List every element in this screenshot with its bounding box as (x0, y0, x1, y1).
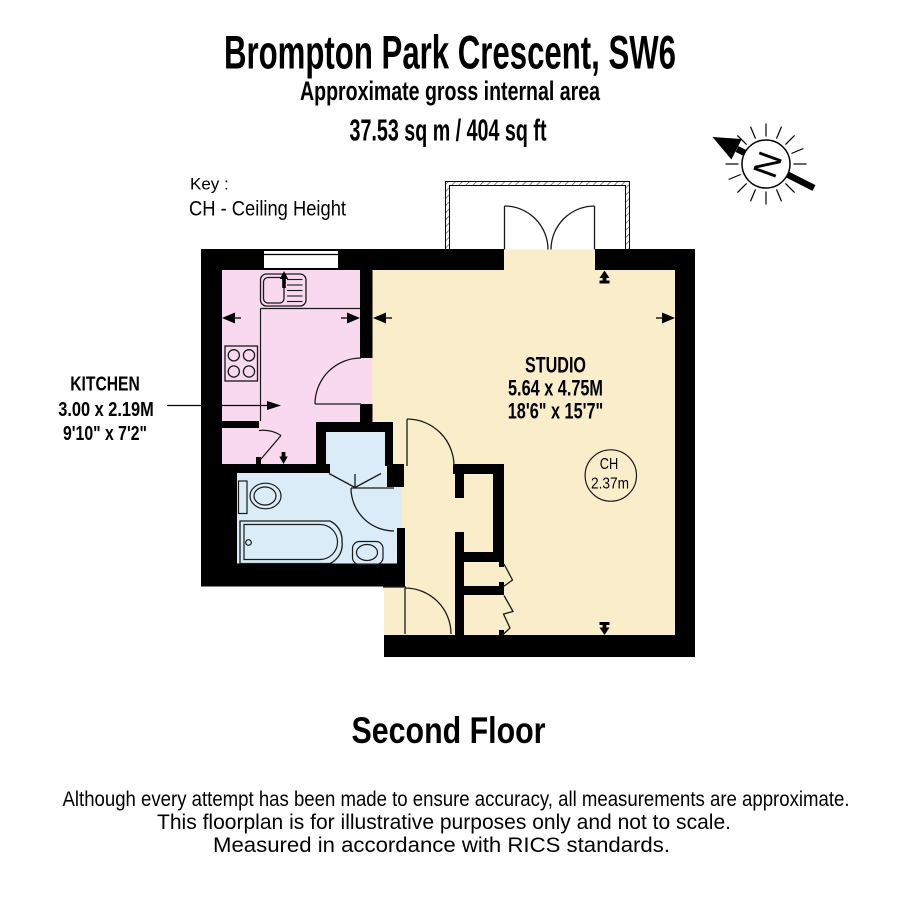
svg-text:3.00 x 2.19M: 3.00 x 2.19M (58, 399, 154, 421)
svg-text:Approximate gross internal are: Approximate gross internal area (300, 76, 600, 106)
svg-text:CH - Ceiling Height: CH - Ceiling Height (189, 197, 346, 221)
svg-text:This floorplan is for illustra: This floorplan is for illustrative purpo… (157, 811, 731, 834)
svg-text:18'6" x 15'7": 18'6" x 15'7" (508, 399, 604, 424)
svg-text:9'10" x 7'2": 9'10" x 7'2" (63, 423, 147, 445)
svg-text:Measured in accordance with RI: Measured in accordance with RICS standar… (213, 834, 670, 857)
svg-text:KITCHEN: KITCHEN (70, 373, 140, 395)
svg-text:Key :: Key : (190, 175, 229, 194)
svg-text:CH: CH (600, 456, 619, 473)
svg-text:STUDIO: STUDIO (525, 353, 586, 378)
svg-text:Although every attempt has bee: Although every attempt has been made to … (63, 788, 850, 811)
svg-text:2.37m: 2.37m (591, 476, 629, 493)
svg-text:5.64 x 4.75M: 5.64 x 4.75M (508, 376, 603, 401)
svg-text:37.53 sq m / 404 sq ft: 37.53 sq m / 404 sq ft (350, 114, 547, 148)
svg-text:Second Floor: Second Floor (352, 710, 546, 751)
svg-text:Brompton Park Crescent, SW6: Brompton Park Crescent, SW6 (224, 26, 676, 79)
